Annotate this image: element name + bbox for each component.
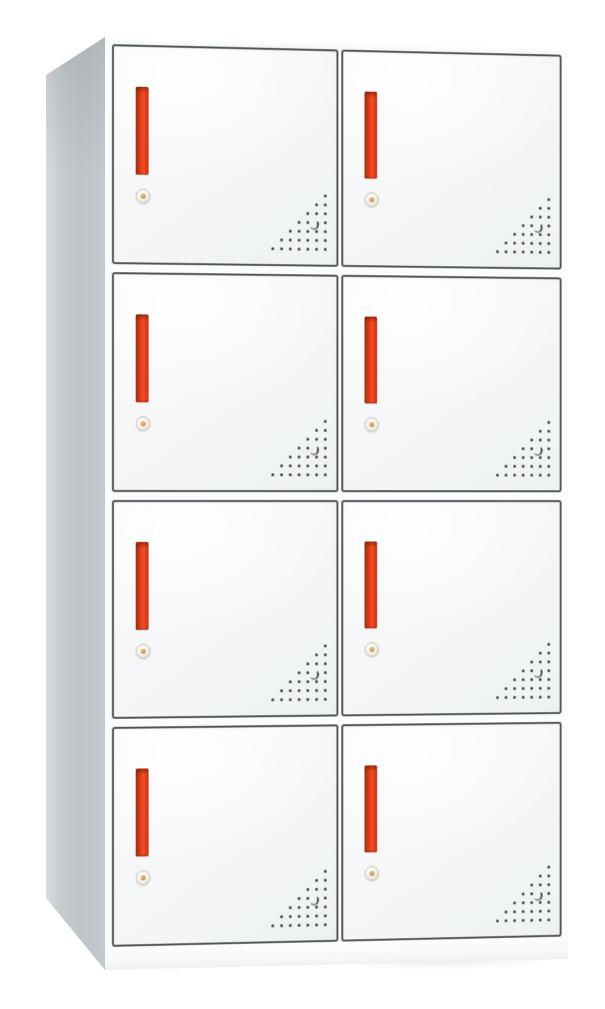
vent-hole (323, 194, 326, 197)
vent-hole (547, 892, 550, 895)
vent-hole (530, 473, 533, 476)
vent-hole (306, 437, 309, 440)
vent-hole (315, 464, 318, 467)
vent-hole (315, 689, 318, 692)
vent-hole (513, 456, 516, 459)
vent-hole (513, 233, 516, 236)
vent-hole (530, 438, 533, 441)
door-lock (136, 870, 151, 885)
vent-hole (288, 689, 291, 692)
vent-hole (323, 689, 326, 692)
vent-hole (522, 901, 525, 904)
door-lock (364, 417, 378, 432)
vent-hole (513, 919, 516, 922)
vent-hole (530, 892, 533, 895)
door-handle (364, 541, 377, 628)
vent-hole (315, 203, 318, 206)
vent-hole (288, 455, 291, 458)
vent-hole (315, 239, 318, 242)
vent-hole (522, 910, 525, 913)
vent-hole-crescent (308, 669, 319, 681)
door-grid (112, 44, 562, 947)
vent-hole (547, 429, 550, 432)
door-handle (136, 87, 149, 175)
locker-door-r3c2 (341, 500, 562, 717)
vent-hole (522, 696, 525, 699)
vent-hole (530, 447, 533, 450)
vent-hole (288, 906, 291, 909)
vent-hole (306, 212, 309, 215)
vent-hole (315, 663, 318, 666)
vent-hole (297, 906, 300, 909)
vent-hole (323, 654, 326, 657)
vent-hole (288, 238, 291, 241)
vent-hole (539, 652, 542, 655)
vent-hole (547, 910, 550, 913)
vent-hole (547, 687, 550, 690)
cabinet-side-panel (46, 37, 105, 970)
vent-hole (306, 221, 309, 224)
door-lock (136, 416, 151, 431)
vent-hole (297, 915, 300, 918)
door-handle (136, 541, 149, 629)
vent-hole (505, 919, 508, 922)
vent-hole (513, 241, 516, 244)
vent-hole (315, 923, 318, 926)
vent-hole (547, 901, 550, 904)
vent-hole (530, 456, 533, 459)
locker-door-r4c1 (112, 725, 338, 947)
vent-hole (297, 464, 300, 467)
vent-hole (323, 437, 326, 440)
vent-hole (323, 888, 326, 891)
vent-hole (530, 883, 533, 886)
vent-hole (513, 910, 516, 913)
vent-holes (496, 643, 550, 699)
vent-hole (539, 215, 542, 218)
vent-hole (280, 238, 283, 241)
vent-hole (297, 897, 300, 900)
vent-hole (288, 247, 291, 250)
vent-hole (539, 233, 542, 236)
vent-hole (539, 464, 542, 467)
vent-hole (280, 698, 283, 701)
vent-hole-crescent (308, 444, 319, 456)
vent-hole (323, 464, 326, 467)
vent-hole (522, 250, 525, 253)
vent-hole (315, 654, 318, 657)
vent-hole (323, 698, 326, 701)
vent-hole (547, 251, 550, 254)
vent-hole (539, 429, 542, 432)
vent-hole (522, 473, 525, 476)
door-lock (364, 192, 378, 207)
vent-hole (522, 687, 525, 690)
vent-hole (547, 473, 550, 476)
vent-hole (271, 247, 274, 250)
vent-hole (530, 250, 533, 253)
vent-hole (522, 464, 525, 467)
vent-hole (323, 230, 326, 233)
vent-hole (547, 198, 550, 201)
vent-hole (539, 687, 542, 690)
vent-hole (315, 212, 318, 215)
vent-hole (323, 914, 326, 917)
vent-hole (547, 224, 550, 227)
vent-hole (288, 681, 291, 684)
vent-hole (539, 883, 542, 886)
vent-hole (271, 924, 274, 927)
door-lock (364, 642, 378, 657)
vent-hole (496, 473, 499, 476)
vent-hole (297, 672, 300, 675)
vent-hole (513, 687, 516, 690)
vent-hole (288, 915, 291, 918)
vent-hole (522, 670, 525, 673)
vent-hole (539, 661, 542, 664)
vent-holes (271, 419, 326, 476)
vent-hole (288, 698, 291, 701)
vent-hole (323, 212, 326, 215)
vent-hole (522, 892, 525, 895)
vent-hole (323, 446, 326, 449)
vent-hole (530, 242, 533, 245)
vent-hole (505, 473, 508, 476)
vent-hole (547, 233, 550, 236)
vent-hole (306, 230, 309, 233)
vent-hole (323, 473, 326, 476)
vent-hole (323, 419, 326, 422)
vent-hole (288, 229, 291, 232)
vent-hole (547, 696, 550, 699)
vent-hole (315, 698, 318, 701)
vent-hole (496, 696, 499, 699)
vent-hole (505, 241, 508, 244)
vent-hole (539, 206, 542, 209)
vent-hole (297, 229, 300, 232)
locker-door-r1c1 (112, 44, 338, 266)
vent-hole (297, 221, 300, 224)
vent-hole (547, 669, 550, 672)
vent-hole (513, 250, 516, 253)
vent-hole (547, 242, 550, 245)
vent-hole (323, 662, 326, 665)
vent-holes (496, 866, 550, 923)
vent-hole (323, 428, 326, 431)
vent-hole-crescent (533, 444, 544, 456)
vent-hole (547, 678, 550, 681)
vent-hole (323, 896, 326, 899)
vent-hole (539, 242, 542, 245)
vent-hole (271, 473, 274, 476)
vent-hole (315, 888, 318, 891)
door-handle (364, 766, 377, 853)
vent-hole (315, 680, 318, 683)
vent-hole (513, 696, 516, 699)
vent-hole (306, 473, 309, 476)
vent-hole (547, 215, 550, 218)
vent-hole (522, 456, 525, 459)
vent-hole (315, 248, 318, 251)
vent-hole (306, 671, 309, 674)
product-photo-scene (0, 0, 605, 1009)
vent-hole-crescent (308, 218, 319, 230)
vent-hole (306, 897, 309, 900)
vent-holes (271, 193, 326, 250)
vent-hole (288, 473, 291, 476)
vent-hole (315, 914, 318, 917)
vent-holes (496, 420, 550, 476)
vent-hole (522, 241, 525, 244)
vent-hole (513, 464, 516, 467)
vent-hole (297, 247, 300, 250)
vent-hole (547, 643, 550, 646)
vent-hole (306, 239, 309, 242)
cabinet-front (105, 37, 568, 970)
vent-hole-crescent (533, 667, 544, 679)
vent-hole (306, 698, 309, 701)
vent-hole (271, 699, 274, 702)
vent-hole (323, 879, 326, 882)
vent-hole (323, 905, 326, 908)
vent-hole (530, 678, 533, 681)
vent-hole (547, 652, 550, 655)
vent-hole (539, 438, 542, 441)
vent-hole (547, 918, 550, 921)
vent-hole (297, 455, 300, 458)
vent-hole (323, 680, 326, 683)
vent-hole (547, 420, 550, 423)
vent-hole (315, 437, 318, 440)
vent-hole (297, 924, 300, 927)
vent-hole (539, 678, 542, 681)
vent-hole (547, 661, 550, 664)
vent-hole (547, 438, 550, 441)
vent-hole (522, 447, 525, 450)
vent-hole (280, 924, 283, 927)
vent-hole-crescent (308, 894, 319, 906)
vent-hole (547, 883, 550, 886)
vent-hole (323, 248, 326, 251)
vent-hole (315, 906, 318, 909)
vent-holes (496, 197, 550, 254)
vent-hole (280, 464, 283, 467)
vent-hole (539, 696, 542, 699)
vent-hole (547, 866, 550, 869)
vent-hole (306, 464, 309, 467)
vent-hole (547, 456, 550, 459)
vent-holes (271, 645, 326, 702)
door-handle (136, 314, 149, 402)
vent-hole (297, 689, 300, 692)
vent-hole (530, 233, 533, 236)
vent-hole (315, 879, 318, 882)
vent-hole (539, 910, 542, 913)
vent-hole (513, 678, 516, 681)
vent-hole (530, 696, 533, 699)
vent-hole (505, 910, 508, 913)
vent-hole (306, 680, 309, 683)
door-handle (364, 316, 377, 403)
vent-hole (306, 924, 309, 927)
vent-hole (513, 901, 516, 904)
door-handle (136, 769, 149, 857)
vent-hole (530, 224, 533, 227)
vent-hole (513, 473, 516, 476)
vent-hole (306, 915, 309, 918)
door-lock (136, 643, 151, 658)
vent-hole (539, 473, 542, 476)
locker-door-r2c1 (112, 272, 338, 492)
vent-hole (530, 661, 533, 664)
vent-hole (539, 456, 542, 459)
vent-hole (539, 919, 542, 922)
vent-hole (297, 238, 300, 241)
door-lock (364, 866, 378, 881)
vent-hole (323, 203, 326, 206)
vent-hole (323, 671, 326, 674)
vent-hole (530, 215, 533, 218)
vent-hole (547, 447, 550, 450)
vent-hole (323, 221, 326, 224)
locker-door-r3c1 (112, 500, 338, 720)
door-handle (364, 92, 377, 179)
vent-hole (539, 901, 542, 904)
vent-hole (306, 906, 309, 909)
vent-hole (530, 464, 533, 467)
vent-hole (522, 678, 525, 681)
locker-door-r1c2 (341, 50, 562, 270)
vent-hole (315, 230, 318, 233)
vent-hole (522, 224, 525, 227)
vent-hole (288, 464, 291, 467)
vent-hole (306, 888, 309, 891)
vent-hole-crescent (533, 222, 544, 234)
vent-holes (271, 870, 326, 928)
vent-hole (530, 687, 533, 690)
vent-hole (505, 464, 508, 467)
vent-hole (496, 919, 499, 922)
vent-hole (505, 696, 508, 699)
vent-hole (306, 446, 309, 449)
vent-hole (547, 874, 550, 877)
vent-hole (297, 698, 300, 701)
vent-hole (530, 910, 533, 913)
vent-hole (280, 247, 283, 250)
locker-door-r4c2 (341, 722, 562, 942)
vent-hole (496, 250, 499, 253)
vent-hole (539, 250, 542, 253)
vent-hole (323, 239, 326, 242)
vent-hole (297, 473, 300, 476)
vent-hole (323, 455, 326, 458)
vent-hole (530, 919, 533, 922)
vent-hole (315, 428, 318, 431)
vent-hole (288, 924, 291, 927)
vent-hole (505, 687, 508, 690)
vent-hole (306, 689, 309, 692)
vent-hole (280, 473, 283, 476)
vent-hole (539, 875, 542, 878)
locker-door-r2c2 (341, 275, 562, 492)
vent-hole-crescent (533, 890, 544, 902)
vent-hole (522, 233, 525, 236)
vent-hole (547, 207, 550, 210)
vent-hole (323, 645, 326, 648)
vent-hole (505, 250, 508, 253)
vent-hole (547, 464, 550, 467)
vent-hole (522, 919, 525, 922)
vent-hole (315, 473, 318, 476)
vent-hole (306, 247, 309, 250)
vent-hole (297, 680, 300, 683)
vent-hole (323, 870, 326, 873)
vent-hole (280, 915, 283, 918)
vent-hole (306, 455, 309, 458)
vent-hole (323, 923, 326, 926)
door-lock (136, 188, 151, 203)
vent-hole (306, 663, 309, 666)
vent-hole (530, 901, 533, 904)
vent-hole (280, 690, 283, 693)
vent-hole (297, 446, 300, 449)
vent-hole (315, 455, 318, 458)
